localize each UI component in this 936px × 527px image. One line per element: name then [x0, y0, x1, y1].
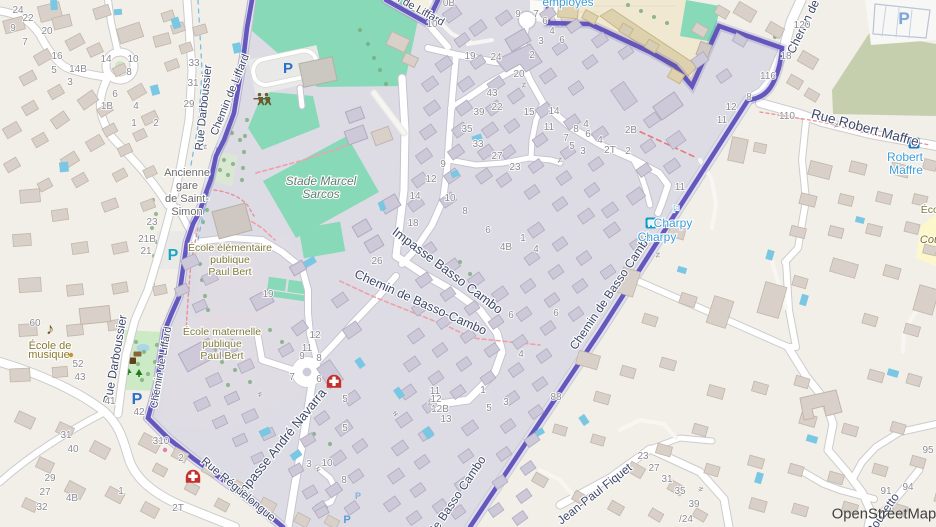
svg-text:2T: 2T: [604, 145, 616, 156]
svg-text:Maffre: Maffre: [889, 163, 923, 177]
svg-text:P: P: [355, 491, 361, 501]
svg-text:15: 15: [523, 107, 535, 118]
svg-text:Cou: Cou: [920, 234, 936, 246]
svg-text:9: 9: [10, 23, 16, 34]
svg-text:5: 5: [342, 423, 348, 434]
svg-text:21: 21: [140, 246, 152, 257]
svg-text:≠: ≠: [522, 80, 527, 90]
svg-text:18: 18: [780, 51, 792, 62]
svg-text:39: 39: [688, 499, 700, 510]
svg-text:8: 8: [341, 475, 347, 486]
svg-text:11: 11: [544, 122, 555, 133]
svg-text:4: 4: [533, 244, 539, 255]
svg-text:Robert: Robert: [887, 150, 924, 164]
svg-text:≠: ≠: [697, 484, 704, 495]
svg-text:8: 8: [573, 124, 579, 135]
svg-text:École maternelle: École maternelle: [183, 325, 261, 338]
svg-text:42: 42: [133, 407, 145, 418]
svg-text:4: 4: [597, 135, 603, 146]
svg-text:310: 310: [153, 436, 170, 447]
svg-text:19: 19: [464, 51, 476, 62]
svg-text:16: 16: [51, 51, 63, 62]
svg-text:43: 43: [486, 88, 498, 99]
svg-text:Charpy: Charpy: [654, 216, 693, 230]
svg-text:Paul Bert: Paul Bert: [200, 350, 243, 362]
svg-text:P: P: [343, 514, 350, 526]
svg-text:4: 4: [133, 101, 139, 112]
svg-text:110: 110: [779, 111, 795, 122]
svg-text:52: 52: [72, 359, 84, 370]
svg-text:1B: 1B: [101, 101, 114, 112]
svg-text:6: 6: [553, 308, 559, 319]
svg-text:6: 6: [585, 129, 591, 140]
svg-text:1: 1: [131, 118, 137, 129]
svg-text:Ancienne: Ancienne: [164, 167, 210, 179]
svg-text:11: 11: [717, 115, 728, 126]
svg-text:23: 23: [637, 451, 649, 462]
svg-text:11: 11: [675, 182, 686, 193]
svg-text:12: 12: [425, 174, 437, 185]
svg-text:60: 60: [29, 318, 41, 329]
svg-text:4B: 4B: [66, 493, 79, 504]
svg-text:35: 35: [461, 124, 473, 135]
svg-text:5: 5: [51, 65, 57, 76]
svg-text:8: 8: [126, 67, 132, 78]
svg-text:95: 95: [922, 445, 934, 456]
svg-text:39: 39: [473, 107, 485, 118]
svg-text:8: 8: [462, 206, 468, 217]
svg-text:43: 43: [74, 372, 86, 383]
svg-text:9: 9: [515, 9, 521, 20]
svg-text:120: 120: [794, 20, 811, 31]
svg-text:⚐: ⚐: [672, 204, 680, 214]
svg-text:88: 88: [550, 392, 562, 403]
svg-text:P: P: [168, 247, 179, 264]
svg-text:3: 3: [67, 77, 73, 88]
svg-text:29: 29: [44, 473, 56, 484]
svg-text:24: 24: [490, 52, 502, 63]
svg-text:3: 3: [306, 459, 312, 470]
svg-text:32: 32: [36, 502, 48, 513]
svg-text:35: 35: [674, 486, 686, 497]
svg-text:≠: ≠: [558, 155, 563, 165]
svg-text:6: 6: [485, 225, 491, 236]
svg-text:4: 4: [549, 26, 555, 37]
svg-text:2T: 2T: [172, 503, 184, 514]
svg-text:23: 23: [509, 162, 521, 173]
svg-text:6: 6: [316, 374, 322, 385]
svg-text:Charpy: Charpy: [638, 230, 677, 244]
svg-text:6: 6: [112, 89, 118, 100]
svg-text:10: 10: [321, 458, 333, 469]
svg-text:0B: 0B: [443, 0, 456, 9]
svg-text:8: 8: [746, 92, 752, 103]
svg-text:2: 2: [529, 50, 535, 61]
svg-text:4: 4: [583, 119, 589, 130]
svg-text:40: 40: [67, 444, 79, 455]
svg-text:École élémentaire: École élémentaire: [188, 241, 272, 254]
svg-text:10: 10: [426, 19, 438, 30]
svg-text:4B: 4B: [500, 242, 513, 253]
svg-text:12: 12: [725, 102, 737, 113]
svg-text:5: 5: [342, 394, 348, 405]
svg-text:P: P: [132, 391, 143, 408]
svg-text:10: 10: [444, 193, 456, 204]
svg-text:27: 27: [491, 151, 503, 162]
svg-text:Stade Marcel: Stade Marcel: [286, 174, 357, 188]
svg-text:3: 3: [538, 36, 544, 47]
svg-text:gare: gare: [176, 180, 198, 192]
svg-text:publique: publique: [202, 338, 242, 350]
svg-text:94: 94: [902, 482, 914, 493]
svg-text:P: P: [898, 9, 909, 28]
svg-text:18: 18: [407, 218, 419, 229]
svg-text:14: 14: [100, 54, 112, 65]
svg-text:41: 41: [104, 396, 116, 407]
svg-text:31: 31: [661, 474, 673, 485]
svg-text:3: 3: [503, 397, 509, 408]
svg-text:21B: 21B: [138, 234, 156, 245]
svg-text:publique: publique: [210, 254, 250, 266]
svg-text:13: 13: [440, 414, 452, 425]
svg-text:31: 31: [60, 430, 72, 441]
svg-text:31: 31: [187, 78, 199, 89]
svg-text:Paul Bert: Paul Bert: [208, 266, 251, 278]
svg-text:≠: ≠: [656, 250, 661, 260]
svg-text:Jean-Paul Fiquet: Jean-Paul Fiquet: [554, 460, 635, 527]
svg-text:7: 7: [22, 37, 28, 48]
svg-text:27: 27: [648, 463, 660, 474]
svg-text:P: P: [283, 60, 293, 77]
svg-text:♪: ♪: [46, 321, 54, 338]
svg-text:4: 4: [518, 349, 524, 360]
svg-text:Simon: Simon: [171, 206, 202, 218]
svg-text:14: 14: [548, 106, 560, 117]
svg-text:14B: 14B: [69, 64, 87, 75]
svg-text:7: 7: [533, 9, 539, 20]
svg-text:1: 1: [520, 233, 526, 244]
svg-text:2: 2: [178, 453, 184, 464]
svg-text:20: 20: [41, 26, 53, 37]
svg-text:22: 22: [491, 102, 503, 113]
svg-text:2: 2: [153, 118, 159, 129]
svg-text:5: 5: [569, 141, 575, 152]
svg-text:employés: employés: [542, 0, 593, 9]
svg-text:Écol: Écol: [921, 203, 936, 216]
svg-text:6: 6: [508, 310, 514, 321]
svg-text:Sarcos: Sarcos: [302, 187, 339, 201]
svg-text:1: 1: [118, 486, 124, 497]
svg-text:7: 7: [289, 372, 295, 383]
svg-text:9: 9: [299, 351, 305, 362]
svg-text:22: 22: [22, 13, 34, 24]
svg-text:2B: 2B: [625, 125, 638, 136]
svg-text:OpenStreetMap: OpenStreetMap: [832, 507, 936, 523]
svg-text:1: 1: [480, 385, 486, 396]
svg-text:de Saint-: de Saint-: [165, 193, 209, 205]
svg-text:6: 6: [559, 35, 565, 46]
svg-text:2: 2: [625, 146, 631, 157]
svg-text:5: 5: [486, 403, 492, 414]
svg-text:29: 29: [183, 99, 195, 110]
svg-text:33: 33: [188, 58, 200, 69]
svg-text:33: 33: [472, 139, 484, 150]
svg-text:8: 8: [316, 353, 322, 364]
svg-text:19: 19: [262, 289, 274, 300]
svg-text:26: 26: [371, 256, 383, 267]
svg-text:3: 3: [580, 146, 586, 157]
svg-text:27: 27: [39, 487, 51, 498]
svg-text:/24: /24: [679, 514, 693, 525]
svg-text:116: 116: [760, 71, 776, 82]
svg-text:10: 10: [127, 54, 139, 65]
svg-text:9: 9: [440, 159, 446, 170]
svg-text:12: 12: [309, 330, 321, 341]
svg-text:23: 23: [146, 217, 158, 228]
svg-text:musique: musique: [28, 349, 70, 361]
svg-text:91: 91: [880, 486, 892, 497]
svg-text:14: 14: [409, 191, 421, 202]
svg-text:6: 6: [542, 16, 548, 27]
svg-text:20: 20: [513, 69, 525, 80]
